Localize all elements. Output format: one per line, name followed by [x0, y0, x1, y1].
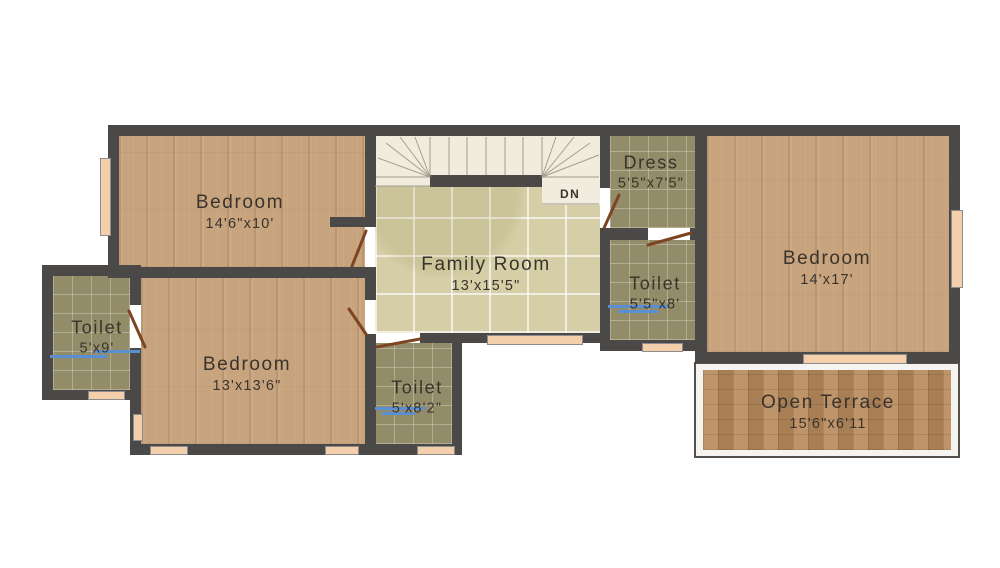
label-family-room: Family Room 13'x15'5": [421, 253, 551, 295]
label-bedroom-top-left: Bedroom 14'6"x10': [196, 191, 284, 233]
wall-toiletL-left: [42, 265, 53, 400]
window-toiletB-bottom: [417, 446, 455, 455]
window-bedroomTL-left: [100, 158, 111, 236]
wall-dress-toilet-divider-left: [600, 228, 648, 240]
floorplan-canvas: Bedroom 14'6"x10' Family Room 13'x15'5" …: [0, 0, 1000, 568]
window-bedroomM-bottom-1: [150, 446, 188, 455]
window-family-bottom: [487, 335, 583, 345]
wall-bedroomTL-bottom: [108, 267, 375, 278]
stairs-left-winder: [375, 136, 430, 186]
stairs-center-treads: [430, 136, 542, 175]
wall-bedroomR-left: [695, 125, 707, 363]
label-bedroom-middle: Bedroom 13'x13'6": [203, 353, 291, 395]
wall-center-lower: [365, 334, 376, 455]
label-toilet-mid: Toilet 5'5"x8': [629, 273, 681, 314]
window-toiletM-bottom: [642, 343, 683, 352]
window-bedroomM-bottom-2: [325, 446, 359, 455]
label-open-terrace: Open Terrace 15'6"x6'11: [761, 391, 895, 433]
wall-toiletL-top: [42, 265, 141, 276]
wall-bedroomM-left-upper: [130, 276, 141, 305]
label-bedroom-right: Bedroom 14'x17': [783, 247, 871, 289]
wall-outer-top: [108, 125, 960, 136]
stairs-center-wall: [430, 175, 542, 187]
window-bedroomM-left: [133, 414, 143, 441]
label-toilet-bottom: Toilet 5'x8'2": [391, 377, 443, 418]
label-toilet-left: Toilet 5'x9': [71, 317, 123, 358]
label-dress: Dress 5'5"x7'5": [618, 152, 684, 193]
wall-door-jamb: [330, 217, 376, 227]
window-toiletL-bottom: [88, 391, 125, 400]
room-bedroom-right: [707, 136, 949, 352]
wall-dress-left-upper: [600, 136, 610, 188]
label-stairs-down: DN: [560, 187, 580, 201]
wall-center-upper: [365, 136, 376, 217]
window-bedroomR-right: [951, 210, 963, 288]
wall-center-mid: [365, 267, 376, 300]
wall-toiletM-left: [600, 228, 610, 350]
wall-toiletB-right: [452, 333, 462, 455]
window-bedroomR-terrace: [803, 354, 907, 364]
